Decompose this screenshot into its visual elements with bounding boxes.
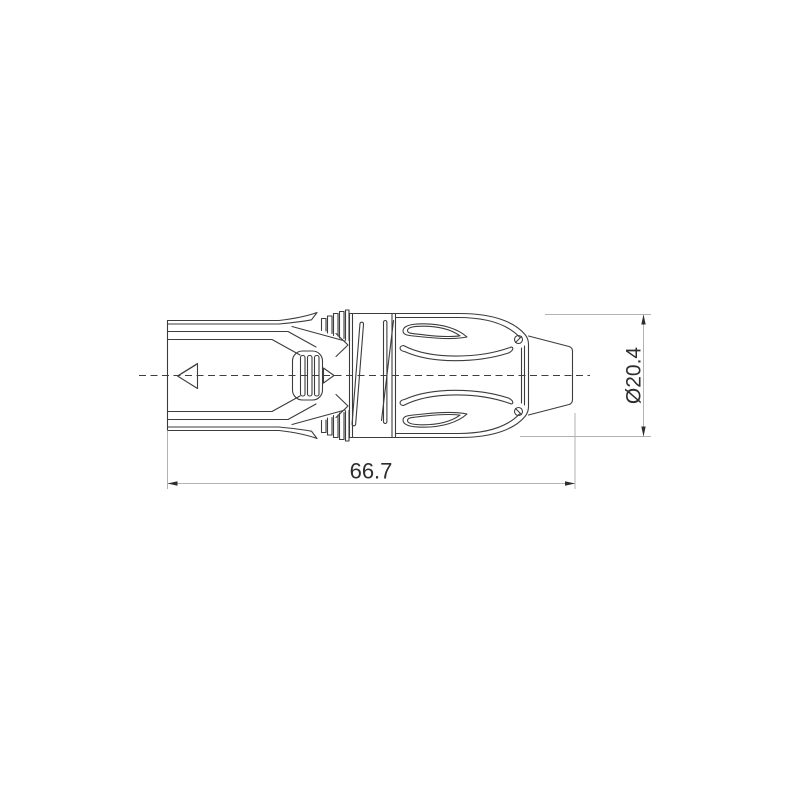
shell-top-edges — [168, 313, 318, 325]
connector-upper-half — [168, 310, 573, 376]
diameter-arrowhead-top — [641, 315, 645, 325]
boot-leaf-slot — [403, 324, 467, 339]
drawing-canvas: 66.7 Ø20.4 — [0, 0, 800, 800]
ring-sliver-right — [384, 321, 387, 424]
connector-technical-drawing: 66.7 Ø20.4 — [0, 0, 800, 800]
length-arrowhead-right — [565, 481, 575, 485]
diameter-dimension: Ø20.4 — [520, 315, 651, 437]
length-dimension-label: 66.7 — [350, 459, 393, 484]
boot-curl-slash — [516, 337, 522, 343]
ring-sliver-left — [352, 322, 364, 426]
grip-pad-bar — [308, 356, 313, 397]
length-arrowhead-left — [168, 481, 178, 485]
boot-finger-edge — [400, 346, 513, 361]
shell-chevron-lines — [168, 327, 349, 357]
cone-tail-top — [529, 336, 573, 376]
boot-end-ring-edges — [522, 346, 525, 376]
diameter-arrowhead-bottom — [641, 427, 645, 437]
diameter-dimension-label: Ø20.4 — [623, 347, 646, 405]
length-dimension: 66.7 — [168, 413, 576, 489]
connector-lower-half — [168, 376, 573, 442]
boot-outline-top — [396, 314, 529, 376]
